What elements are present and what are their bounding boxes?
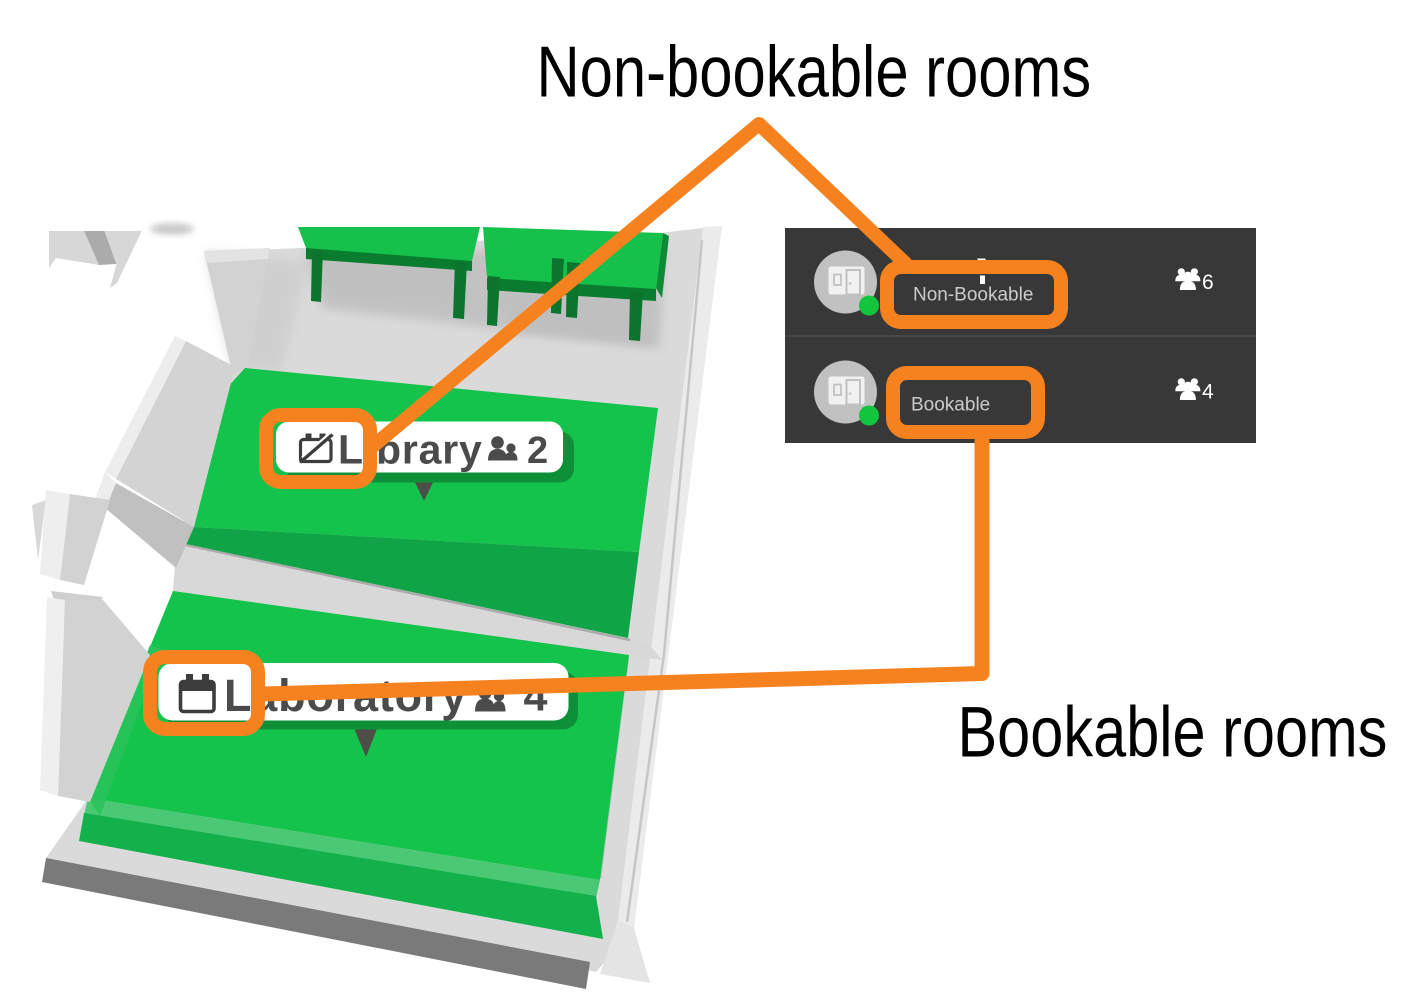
svg-text:Library: Library [338,427,483,473]
svg-text:6: 6 [1202,271,1214,294]
svg-text:Non-bookable rooms: Non-bookable rooms [537,32,1092,113]
svg-text:4: 4 [1202,381,1214,404]
svg-text:Non-Bookable: Non-Bookable [913,285,1033,306]
svg-text:2: 2 [527,430,548,472]
svg-text:Bookable rooms: Bookable rooms [958,693,1388,772]
svg-text:Bookable: Bookable [911,395,990,416]
